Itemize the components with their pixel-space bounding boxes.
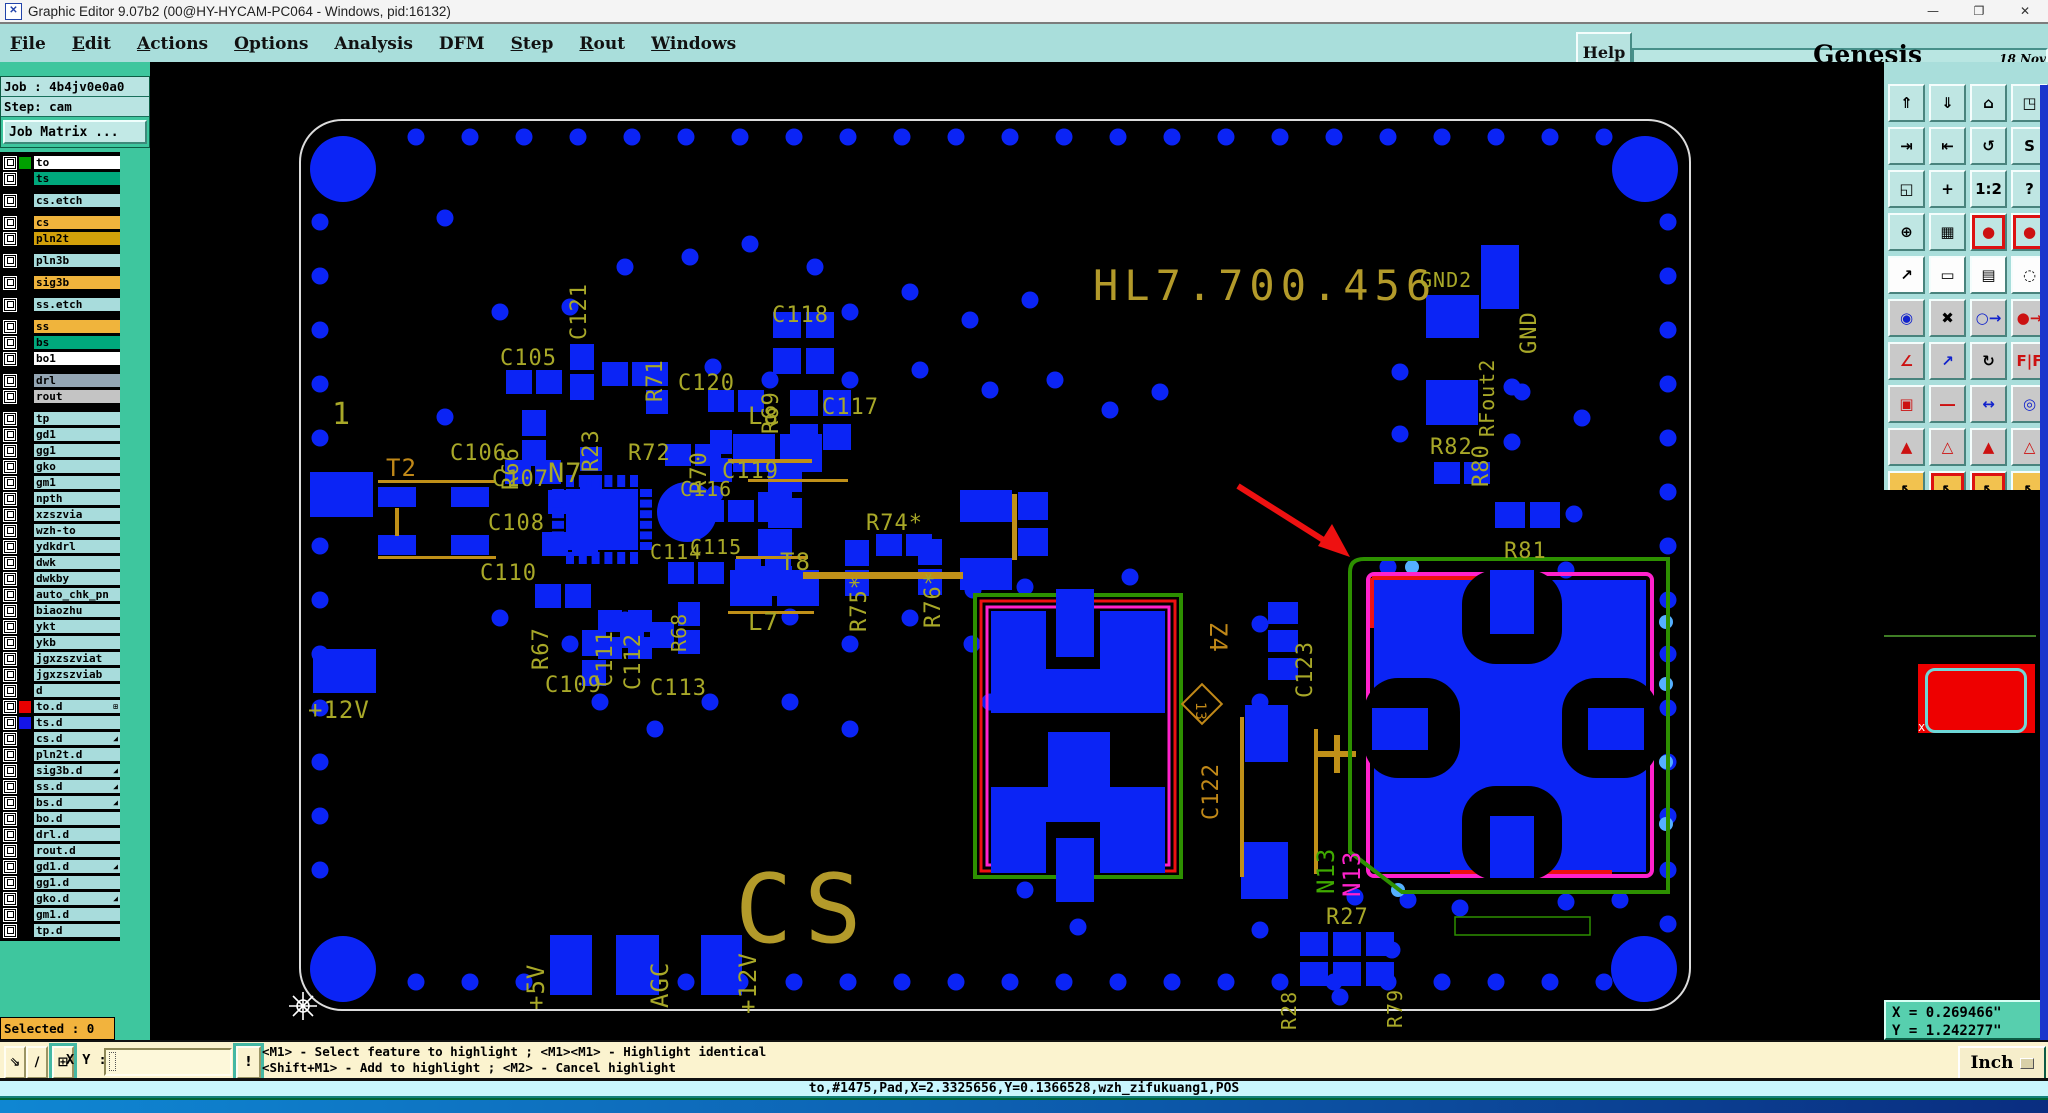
layer-row-tp[interactable]: tp [0, 411, 120, 426]
via-dot [840, 129, 857, 146]
component-label: R67 [529, 627, 554, 670]
copy-pad-icon[interactable]: ▣ [1888, 385, 1925, 423]
layer-suffix-icon: ◢ [113, 767, 118, 775]
layer-row-bs[interactable]: bs [0, 335, 120, 350]
layer-row-drl.d[interactable]: drl.d [0, 827, 120, 842]
component-label: GND2 [1420, 268, 1472, 292]
via-dot [678, 129, 695, 146]
zoom-out-icon[interactable]: ⇓ [1929, 84, 1966, 122]
measure-ruler-icon[interactable]: ▤ [1970, 256, 2007, 294]
layer-row-ydkdrl[interactable]: ydkdrl [0, 539, 120, 554]
layer-color-swatch [19, 477, 31, 489]
layer-checkbox[interactable] [4, 195, 16, 207]
component-label: L8 [748, 402, 779, 430]
pad [313, 649, 376, 693]
input-caret [109, 1052, 116, 1071]
layer-checkbox[interactable] [4, 749, 16, 761]
layer-name[interactable]: pln3b [34, 254, 120, 267]
menu-actions[interactable]: Actions [137, 34, 208, 54]
component-label: 13 [1192, 702, 1208, 721]
layer-checkbox[interactable] [4, 829, 16, 841]
pad [790, 390, 818, 416]
zoom-ratio-icon[interactable]: 1:2 [1970, 170, 2007, 208]
pad [536, 370, 562, 394]
minimize-button[interactable]: — [1910, 0, 1956, 22]
pcb-canvas[interactable]: HL7.700.456CS1T2C105C121R66C106C107N7C10… [150, 62, 1884, 1040]
layer-name[interactable]: drl [34, 374, 120, 387]
via-dot [1566, 506, 1583, 523]
layer-name[interactable]: tp.d [34, 924, 120, 937]
layer-row-pln3b[interactable]: pln3b [0, 253, 120, 268]
layer-checkbox[interactable] [4, 797, 16, 809]
layer-checkbox[interactable] [4, 637, 16, 649]
silk-line [1012, 494, 1017, 560]
ic-pin [552, 542, 564, 550]
net-view-icon[interactable]: ◉ [1888, 299, 1925, 337]
layer-checkbox[interactable] [4, 573, 16, 585]
alert-button[interactable]: ! [236, 1046, 261, 1079]
contour-3-icon[interactable]: ▲ [1970, 428, 2007, 466]
delete-icon[interactable]: ✖ [1929, 299, 1966, 337]
layer-checkbox[interactable] [4, 391, 16, 403]
via-dot [1380, 129, 1397, 146]
layer-row-gm1[interactable]: gm1 [0, 475, 120, 490]
via-dot [492, 304, 509, 321]
layer-checkbox[interactable] [4, 909, 16, 921]
layer-name[interactable]: gg1.d [34, 876, 120, 889]
layer-name[interactable]: sig3b.d◢ [34, 764, 120, 777]
layer-color-swatch [19, 877, 31, 889]
layer-suffix-icon: ◢ [113, 783, 118, 791]
component-label: RFout2 [1475, 359, 1499, 437]
layer-row-to.d[interactable]: to.d⊞ [0, 699, 120, 714]
silk-line [1240, 717, 1244, 877]
layer-display-1-icon[interactable]: ● [1970, 213, 2007, 251]
layer-color-swatch [19, 277, 31, 289]
layer-color-swatch [19, 845, 31, 857]
pad [565, 584, 591, 608]
layer-checkbox[interactable] [4, 233, 16, 245]
via-dot [902, 284, 919, 301]
grid-icon[interactable]: ▦ [1929, 213, 1966, 251]
close-button[interactable]: ✕ [2002, 0, 2048, 22]
via-dot [982, 382, 999, 399]
menu-edit[interactable]: Edit [72, 34, 111, 54]
layer-color-swatch [19, 829, 31, 841]
menu-step[interactable]: Step [511, 34, 554, 54]
via-dot [1504, 379, 1521, 396]
fit-board-icon[interactable]: ◱ [1888, 170, 1925, 208]
layer-checkbox[interactable] [4, 493, 16, 505]
menu-rout[interactable]: Rout [579, 34, 625, 54]
via-dot [842, 721, 859, 738]
layer-checkbox[interactable] [4, 733, 16, 745]
layer-name[interactable]: biaozhu [34, 604, 120, 617]
layer-checkbox[interactable] [4, 461, 16, 473]
job-matrix-button[interactable]: Job Matrix ... [3, 120, 147, 144]
layer-name[interactable]: gm1 [34, 476, 120, 489]
layer-row-sig3b.d[interactable]: sig3b.d◢ [0, 763, 120, 778]
layer-name[interactable]: ss [34, 320, 120, 333]
via-dot [842, 372, 859, 389]
pad [773, 348, 801, 374]
component-z4[interactable] [975, 589, 1222, 902]
maximize-button[interactable]: ❐ [1956, 0, 2002, 22]
layer-checkbox[interactable] [4, 277, 16, 289]
layer-name[interactable]: cs.etch [34, 194, 120, 207]
layer-row-ss.etch[interactable]: ss.etch [0, 297, 120, 312]
via-dot [1056, 129, 1073, 146]
layer-checkbox[interactable] [4, 413, 16, 425]
layer-name[interactable]: sig3b [34, 276, 120, 289]
ic-pin [604, 475, 612, 487]
component-label: L7 [748, 608, 779, 636]
via-dot [1542, 129, 1559, 146]
via-dot [437, 409, 454, 426]
taskbar-strip [0, 1098, 2048, 1113]
layer-checkbox[interactable] [4, 861, 16, 873]
ic-pin [617, 475, 625, 487]
layer-name[interactable]: cs [34, 216, 120, 229]
component-label: R75* [847, 575, 872, 632]
cursor-x: X = 0.269466" [1892, 1004, 2042, 1022]
stretch-icon[interactable]: ― [1929, 385, 1966, 423]
layer-checkbox[interactable] [4, 893, 16, 905]
layer-name[interactable]: gg1 [34, 444, 120, 457]
layer-row-bo1[interactable]: bo1 [0, 351, 120, 366]
layer-name[interactable]: ykb [34, 636, 120, 649]
layer-row-cs.etch[interactable]: cs.etch [0, 193, 120, 208]
via-dot [408, 129, 425, 146]
component-label: N13 [1312, 848, 1340, 894]
layer-color-swatch [19, 375, 31, 387]
layer-row-ykb[interactable]: ykb [0, 635, 120, 650]
layer-name[interactable]: gm1.d [34, 908, 120, 921]
layer-name[interactable]: bo.d [34, 812, 120, 825]
layer-color-swatch [19, 733, 31, 745]
layer-row-gd1[interactable]: gd1 [0, 427, 120, 442]
layer-row-drl[interactable]: drl [0, 373, 120, 388]
layer-row-gko.d[interactable]: gko.d◢ [0, 891, 120, 906]
dropdown-icon [2020, 1058, 2034, 1069]
layer-name[interactable]: rout [34, 390, 120, 403]
layer-checkbox[interactable] [4, 669, 16, 681]
layer-row-gko[interactable]: gko [0, 459, 120, 474]
via-dot [786, 129, 803, 146]
component-label: R72 [628, 441, 671, 466]
pad [535, 584, 561, 608]
angle-line-icon[interactable]: ∠ [1888, 342, 1925, 380]
layer-color-swatch [19, 255, 31, 267]
pan-left-icon[interactable]: ⇤ [1929, 127, 1966, 165]
pad [845, 540, 869, 566]
pad [1495, 502, 1525, 528]
layer-name[interactable]: pln2t.d [34, 748, 120, 761]
pan-right-icon[interactable]: ⇥ [1888, 127, 1925, 165]
layer-row-ts.d[interactable]: ts.d [0, 715, 120, 730]
layer-checkbox[interactable] [4, 925, 16, 937]
layer-row-auto_chk_pn[interactable]: auto_chk_pn [0, 587, 120, 602]
layer-name[interactable]: ydkdrl [34, 540, 120, 553]
via-dot [647, 721, 664, 738]
menu-options[interactable]: Options [234, 34, 308, 54]
ic-pin [566, 552, 574, 564]
layer-checkbox[interactable] [4, 621, 16, 633]
center-view-icon[interactable]: + [1929, 170, 1966, 208]
layer-checkbox[interactable] [4, 813, 16, 825]
via-dot [1022, 292, 1039, 309]
pad [780, 434, 822, 472]
pad [570, 344, 594, 370]
zoom-in-icon[interactable]: ⇑ [1888, 84, 1925, 122]
via-dot [1660, 538, 1677, 555]
layer-name[interactable]: pln2t [34, 232, 120, 245]
via-dot [1660, 268, 1677, 285]
layer-row-sig3b[interactable]: sig3b [0, 275, 120, 290]
layer-checkbox[interactable] [4, 173, 16, 185]
layer-row-ts[interactable]: ts [0, 171, 120, 186]
layer-checkbox[interactable] [4, 765, 16, 777]
layer-name[interactable]: gd1.d◢ [34, 860, 120, 873]
silk-line [1334, 735, 1340, 773]
layer-color-swatch [19, 493, 31, 505]
layer-row-gd1.d[interactable]: gd1.d◢ [0, 859, 120, 874]
pad [602, 362, 628, 386]
layer-checkbox[interactable] [4, 157, 16, 169]
layer-row-pln2t.d[interactable]: pln2t.d [0, 747, 120, 762]
layer-name[interactable]: ts [34, 172, 120, 185]
via-dot [1122, 569, 1139, 586]
layer-name[interactable]: bo1 [34, 352, 120, 365]
via-dot [312, 268, 329, 285]
xy-input[interactable] [104, 1048, 232, 1076]
layer-checkbox[interactable] [4, 877, 16, 889]
layer-checkbox[interactable] [4, 429, 16, 441]
contour-2-icon[interactable]: △ [1929, 428, 1966, 466]
graphic-editor-window: ✕ Graphic Editor 9.07b2 (00@HY-HYCAM-PC0… [0, 0, 2048, 1113]
layer-color-swatch [19, 233, 31, 245]
component-label: R27 [1326, 905, 1369, 930]
component-label: R71 [643, 359, 668, 402]
redraw-icon[interactable]: ↺ [1970, 127, 2007, 165]
component-label: C107 [492, 467, 549, 492]
home-view-icon[interactable]: ⌂ [1970, 84, 2007, 122]
spacing-icon[interactable]: ↔ [1970, 385, 2007, 423]
layer-row-biaozhu[interactable]: biaozhu [0, 603, 120, 618]
polygon-icon[interactable]: ▭ [1929, 256, 1966, 294]
layer-row-jgxzszviab[interactable]: jgxzszviab [0, 667, 120, 682]
via-dot [1452, 900, 1469, 917]
layer-name[interactable]: wzh-to [34, 524, 120, 537]
via-dot [312, 754, 329, 771]
layer-color-swatch [19, 765, 31, 777]
layer-name[interactable]: bs [34, 336, 120, 349]
layer-name[interactable]: drl.d [34, 828, 120, 841]
layer-color-swatch [19, 321, 31, 333]
layer-name[interactable]: dwkby [34, 572, 120, 585]
measure-angle-button[interactable]: ∕ [26, 1046, 48, 1079]
layer-checkbox[interactable] [4, 557, 16, 569]
layer-checkbox[interactable] [4, 541, 16, 553]
layer-name[interactable]: tp [34, 412, 120, 425]
layer-row-xzszvia[interactable]: xzszvia [0, 507, 120, 522]
layer-name[interactable]: jgxzszviab [34, 668, 120, 681]
menu-analysis[interactable]: Analysis [334, 34, 413, 54]
component-label: C122 [1199, 763, 1224, 820]
via-dot [678, 974, 695, 991]
highlighted-component[interactable] [1350, 559, 1668, 892]
contour-1-icon[interactable]: ▲ [1888, 428, 1925, 466]
menu-dfm[interactable]: DFM [439, 34, 485, 54]
layer-checkbox[interactable] [4, 509, 16, 521]
layer-row-tp.d[interactable]: tp.d [0, 923, 120, 938]
mounting-hole [310, 936, 376, 1002]
via-dot [1272, 129, 1289, 146]
layer-row-gg1.d[interactable]: gg1.d [0, 875, 120, 890]
layer-row-cs[interactable]: cs [0, 215, 120, 230]
layer-name[interactable]: dwk [34, 556, 120, 569]
component-label: C120 [678, 371, 735, 396]
datum-arrow-button[interactable]: ⇘ [4, 1046, 26, 1079]
layer-checkbox[interactable] [4, 717, 16, 729]
ic-pin [640, 531, 652, 539]
layer-row-bs.d[interactable]: bs.d◢ [0, 795, 120, 810]
layer-name[interactable]: xzszvia [34, 508, 120, 521]
layer-checkbox[interactable] [4, 217, 16, 229]
via-dot [1660, 430, 1677, 447]
layer-row-gg1[interactable]: gg1 [0, 443, 120, 458]
via-dot [1326, 129, 1343, 146]
layer-row-pln2t[interactable]: pln2t [0, 231, 120, 246]
layer-name[interactable]: ss.etch [34, 298, 120, 311]
via-dot [842, 636, 859, 653]
layer-row-ss[interactable]: ss [0, 319, 120, 334]
layer-row-wzh-to[interactable]: wzh-to [0, 523, 120, 538]
ic-pin [640, 510, 652, 518]
layer-color-swatch [19, 337, 31, 349]
via-dot [1434, 974, 1451, 991]
layer-color-swatch [19, 353, 31, 365]
red-annotation-arrow [1238, 486, 1350, 557]
layer-checkbox[interactable] [4, 477, 16, 489]
layer-name[interactable]: to.d⊞ [34, 700, 120, 713]
layer-color-swatch [19, 173, 31, 185]
layer-name[interactable]: gko.d◢ [34, 892, 120, 905]
layer-name[interactable]: bs.d◢ [34, 796, 120, 809]
layer-name[interactable]: gd1 [34, 428, 120, 441]
job-field[interactable]: Job : 4b4jv0e0a0 [1, 77, 149, 97]
layer-row-ykt[interactable]: ykt [0, 619, 120, 634]
component-label: N7 [548, 458, 583, 489]
via-dot [894, 974, 911, 991]
via-dot [1110, 129, 1127, 146]
via-dot [912, 362, 929, 379]
component-label: C123 [1293, 641, 1318, 698]
layer-row-gm1.d[interactable]: gm1.d [0, 907, 120, 922]
layer-row-jgxzszviat[interactable]: jgxzszviat [0, 651, 120, 666]
component-label: C115 [690, 535, 742, 559]
layer-name[interactable]: to [34, 156, 120, 169]
rotate-icon[interactable]: ↻ [1970, 342, 2007, 380]
layer-checkbox[interactable] [4, 255, 16, 267]
layer-name[interactable]: ss.d◢ [34, 780, 120, 793]
layer-name[interactable]: gko [34, 460, 120, 473]
layer-checkbox[interactable] [4, 375, 16, 387]
add-line-icon[interactable]: ↗ [1929, 342, 1966, 380]
ic-pin [630, 475, 638, 487]
via-dot [1392, 426, 1409, 443]
layer-checkbox[interactable] [4, 653, 16, 665]
pad [698, 562, 724, 584]
menu-windows[interactable]: Windows [651, 34, 736, 54]
ic-pin [640, 521, 652, 529]
layer-row-dwk[interactable]: dwk [0, 555, 120, 570]
move-feature-icon[interactable]: ○→ [1970, 299, 2007, 337]
layer-checkbox[interactable] [4, 845, 16, 857]
via-dot [1218, 129, 1235, 146]
pad [758, 492, 792, 522]
layer-checkbox[interactable] [4, 781, 16, 793]
layer-name[interactable]: ykt [34, 620, 120, 633]
layer-checkbox[interactable] [4, 445, 16, 457]
layer-name[interactable]: cs.d◢ [34, 732, 120, 745]
layer-row-d[interactable]: d [0, 683, 120, 698]
layer-row-dwkby[interactable]: dwkby [0, 571, 120, 586]
via-dot [1272, 974, 1289, 991]
layer-color-swatch [19, 909, 31, 921]
layer-name[interactable]: d [34, 684, 120, 697]
layer-checkbox[interactable] [4, 337, 16, 349]
via-dot [1392, 364, 1409, 381]
layer-checkbox[interactable] [4, 701, 16, 713]
layer-checkbox[interactable] [4, 685, 16, 697]
layer-checkbox[interactable] [4, 605, 16, 617]
via-dot [782, 694, 799, 711]
layer-name[interactable]: jgxzszviat [34, 652, 120, 665]
layer-row-ss.d[interactable]: ss.d◢ [0, 779, 120, 794]
menu-file[interactable]: File [10, 34, 46, 54]
layer-row-rout[interactable]: rout [0, 389, 120, 404]
layer-name[interactable]: ts.d [34, 716, 120, 729]
layer-color-swatch [19, 621, 31, 633]
select-move-icon[interactable]: ↗ [1888, 256, 1925, 294]
layer-row-bo.d[interactable]: bo.d [0, 811, 120, 826]
layer-row-rout.d[interactable]: rout.d [0, 843, 120, 858]
layer-row-cs.d[interactable]: cs.d◢ [0, 731, 120, 746]
layer-checkbox[interactable] [4, 353, 16, 365]
component-label: R68 [667, 613, 691, 652]
layer-row-npth[interactable]: npth [0, 491, 120, 506]
setup-icon[interactable]: ⊕ [1888, 213, 1925, 251]
layer-name[interactable]: auto_chk_pn [34, 588, 120, 601]
layer-checkbox[interactable] [4, 525, 16, 537]
via-dot [492, 610, 509, 627]
layer-checkbox[interactable] [4, 299, 16, 311]
via-dot [570, 129, 587, 146]
step-field[interactable]: Step: cam [1, 97, 149, 117]
layer-checkbox[interactable] [4, 589, 16, 601]
component-label: HL7.700.456 [1093, 261, 1437, 310]
layer-checkbox[interactable] [4, 321, 16, 333]
layer-name[interactable]: rout.d [34, 844, 120, 857]
layer-name[interactable]: npth [34, 492, 120, 505]
ic-pin [579, 552, 587, 564]
layer-suffix-icon: ◢ [113, 863, 118, 871]
units-dropdown[interactable]: Inch [1958, 1046, 2046, 1080]
cursor-y: Y = 1.242277" [1892, 1022, 2042, 1040]
layer-row-to[interactable]: to [0, 155, 120, 170]
via-dot [1047, 372, 1064, 389]
